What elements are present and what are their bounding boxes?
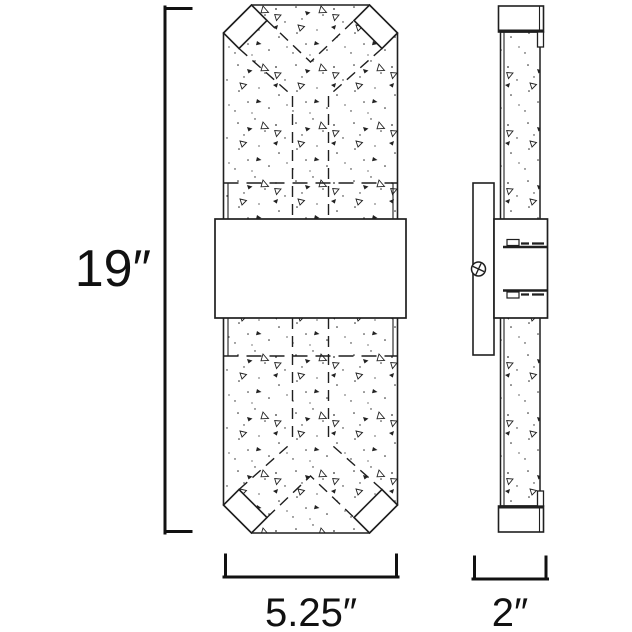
mounting-band-side xyxy=(494,219,548,318)
top-cap-body xyxy=(499,6,544,32)
width-dimension: 5.25″ xyxy=(224,555,398,632)
front-view xyxy=(215,5,406,533)
height-dimension-label: 19″ xyxy=(75,240,151,298)
height-dimension: 19″ xyxy=(75,7,191,533)
bottom-cap-body xyxy=(499,506,544,532)
led-clip xyxy=(507,240,519,246)
top-cap-lip xyxy=(538,32,544,47)
width-dimension-label: 5.25″ xyxy=(265,591,357,632)
led-clip xyxy=(507,292,519,298)
height-dimension-bracket xyxy=(165,7,191,533)
mounting-band-front xyxy=(215,219,406,318)
side-view xyxy=(470,6,547,532)
depth-dimension-bracket xyxy=(473,557,548,579)
sconce-dimension-diagram: 19″ xyxy=(0,0,632,632)
diagram-svg: 19″ xyxy=(0,0,632,632)
depth-dimension: 2″ xyxy=(473,557,548,632)
bottom-cap-lip xyxy=(538,491,544,506)
depth-dimension-label: 2″ xyxy=(492,591,528,632)
width-dimension-bracket xyxy=(224,555,398,577)
